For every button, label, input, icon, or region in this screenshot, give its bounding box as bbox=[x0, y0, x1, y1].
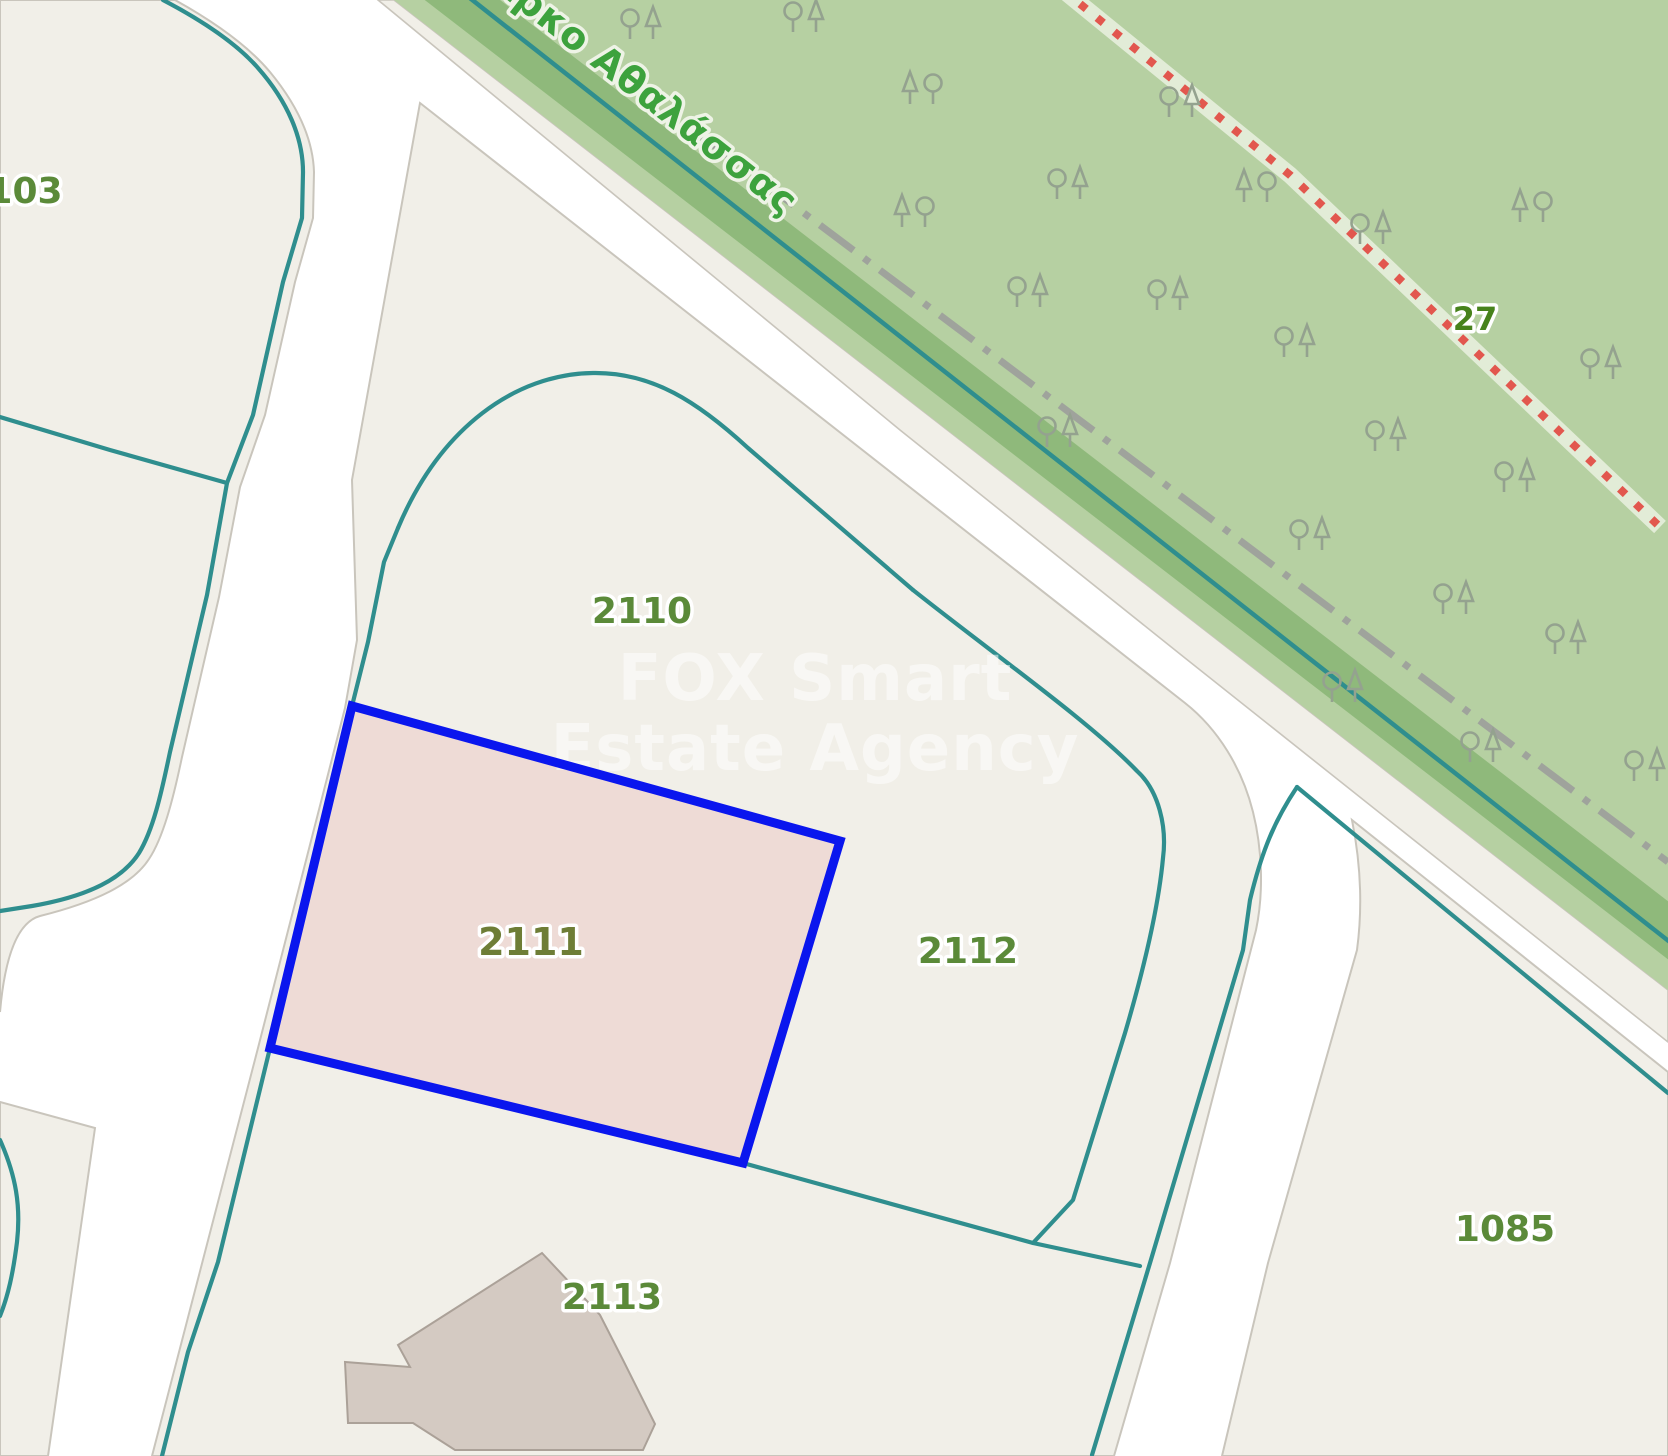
parcel-label-2113: 2113 bbox=[562, 1277, 662, 1318]
parcel-label-2110: 2110 bbox=[592, 591, 692, 632]
parcel-label-2112: 2112 bbox=[918, 931, 1018, 972]
svg-text:FOX Smart: FOX Smart bbox=[618, 642, 1013, 716]
trail-label-27: 27 bbox=[1453, 300, 1498, 338]
map-canvas[interactable]: FOX Smart Estate Agency Πάρκο Αθαλάσσας … bbox=[0, 0, 1668, 1456]
parcel-label-2111[interactable]: 2111 bbox=[478, 920, 584, 964]
parcel-label-1085: 1085 bbox=[1455, 1209, 1555, 1250]
svg-text:Estate Agency: Estate Agency bbox=[551, 712, 1080, 786]
watermark: FOX Smart Estate Agency bbox=[551, 642, 1080, 786]
parcel-label-103: 103 bbox=[0, 171, 63, 212]
